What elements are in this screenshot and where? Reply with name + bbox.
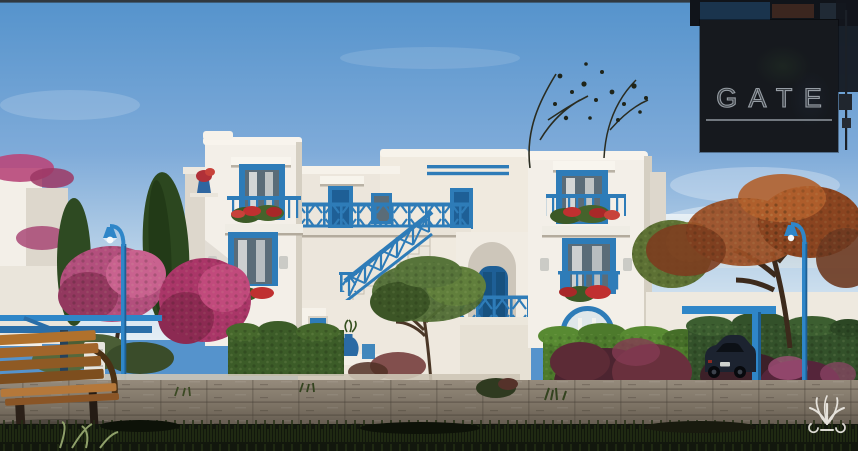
tail-light xyxy=(708,360,712,363)
balcony-slab xyxy=(297,228,471,235)
architectural-render: GATE xyxy=(0,0,858,451)
wall-lamp xyxy=(279,256,288,269)
bougainvillea-roof xyxy=(30,168,74,188)
wall-lamp xyxy=(540,258,549,271)
blue-chair xyxy=(362,344,375,359)
parapet-stripe xyxy=(427,172,509,175)
balcony-slab xyxy=(225,224,303,233)
hedge-left xyxy=(226,321,344,376)
awning xyxy=(320,176,364,184)
parapet xyxy=(526,151,648,160)
awning xyxy=(553,161,615,170)
awning xyxy=(231,157,291,165)
gate-logo: GATE xyxy=(700,20,838,152)
upper-balcony-railing xyxy=(297,203,471,238)
gate-logo-text: GATE xyxy=(705,85,833,112)
juliet-balcony xyxy=(542,194,630,238)
parapet xyxy=(298,166,400,174)
wall-lamp xyxy=(623,258,632,271)
lamp-glow xyxy=(107,237,114,244)
parapet-stripe xyxy=(427,165,509,168)
foreground-grass xyxy=(0,420,858,451)
terrace-slab xyxy=(455,317,531,325)
juliet-balcony xyxy=(225,196,303,236)
parapet xyxy=(380,149,528,157)
balcony-slab xyxy=(542,226,630,235)
lamp-glow xyxy=(788,235,794,241)
license-plate xyxy=(720,362,730,367)
gate-logo-underline xyxy=(706,119,832,121)
lower-window xyxy=(558,238,620,302)
cloud xyxy=(340,47,520,69)
parapet-step xyxy=(203,131,233,140)
cloud xyxy=(0,90,140,120)
